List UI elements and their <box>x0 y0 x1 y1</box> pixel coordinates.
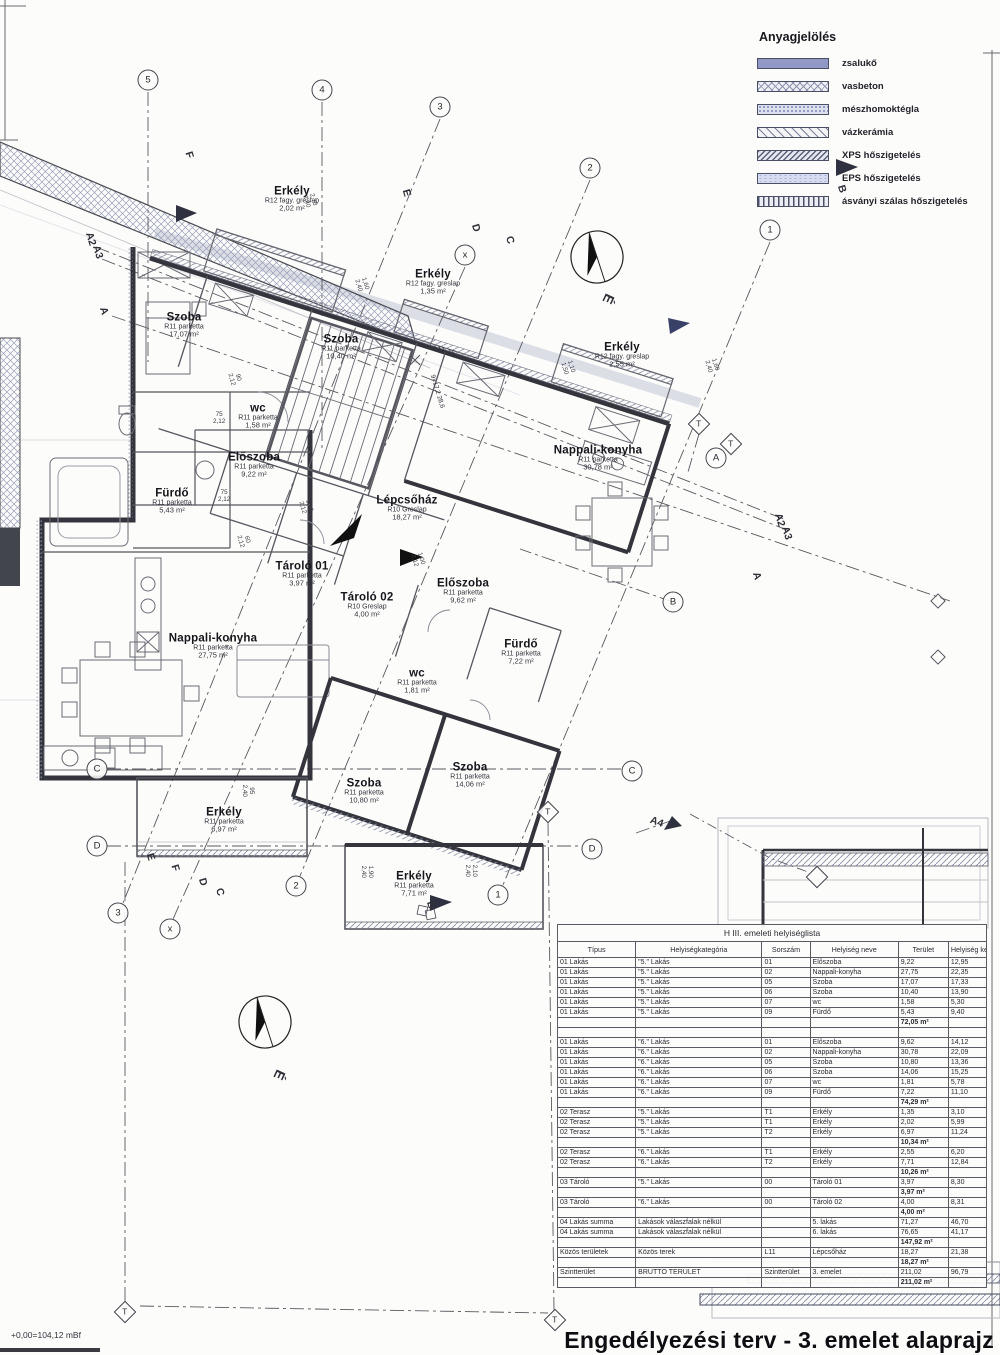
table-row: 3,97 m² <box>558 1188 987 1198</box>
table-row: 04 Lakás summaLakások válaszfalak nélkül… <box>558 1218 987 1228</box>
legend-title: Anyagjelölés <box>759 30 993 44</box>
col-kategoria: Helyiségkategória <box>636 942 762 958</box>
room-label-furdo-543: Fürdő R11 parketta 5,43 m² <box>152 487 192 514</box>
axis-marker-c: C <box>87 759 108 780</box>
wall-section-detail-1 <box>690 814 988 928</box>
axis-marker-1: 1 <box>488 885 509 906</box>
axis-marker-2: 2 <box>286 876 307 897</box>
dimension: 752,12 <box>218 490 230 504</box>
room-label-lepcsohaz: Lépcsőház R10 Greslap 18,27 m² <box>376 494 437 521</box>
legend-item: ásványi szálas hőszigetelés <box>757 195 993 207</box>
dimension: 2,102,40 <box>463 865 477 877</box>
dimension: 1,902,40 <box>359 866 373 878</box>
axis-marker-4: 4 <box>312 80 333 101</box>
axis-marker-2: 2 <box>580 158 601 179</box>
swatch-meszhomoktegla <box>757 104 829 115</box>
table-row: 01 Lakás"6." Lakás05Szoba10,8013,36 <box>558 1058 987 1068</box>
room-label-eloszoba-962: Előszoba R11 parketta 9,62 m² <box>437 577 489 604</box>
room-label-eloszoba-922: Előszoba R11 parketta 9,22 m² <box>228 451 280 478</box>
room-label-erkely-697: Erkély R11 parketta 6,97 m² <box>204 806 244 833</box>
table-row: 02 Terasz"6." LakásT2Erkély7,7112,84 <box>558 1158 987 1168</box>
legend-item: EPS hőszigetelés <box>757 172 993 184</box>
balcony-771 <box>345 845 543 929</box>
table-title: H III. emeleti helyiséglista <box>558 925 987 942</box>
table-row: 18,27 m² <box>558 1258 987 1268</box>
table-row: 01 Lakás"6." Lakás07wc1,815,78 <box>558 1078 987 1088</box>
room-label-erkely-135: Erkély R12 fagy. greslap 1,35 m² <box>406 268 460 295</box>
table-row: 72,05 m² <box>558 1018 987 1028</box>
legend-item: XPS hőszigetelés <box>757 149 993 161</box>
axis-marker-1: 1 <box>760 220 781 241</box>
table-row: 01 Lakás"5." Lakás06Szoba10,4013,90 <box>558 988 987 998</box>
table-header-row: Típus Helyiségkategória Sorszám Helyiség… <box>558 942 987 958</box>
col-terulet: Terület <box>898 942 948 958</box>
axis-marker-d: D <box>87 836 108 857</box>
table-row: 01 Lakás"5." Lakás07wc1,585,30 <box>558 998 987 1008</box>
dimension: 752,12 <box>213 412 225 426</box>
table-row <box>558 1028 987 1038</box>
col-tipus: Típus <box>558 942 636 958</box>
north-arrow-icon <box>564 224 630 290</box>
swatch-zsaluko <box>757 58 829 69</box>
axis-marker-a: A <box>706 448 727 469</box>
table-row: 74,29 m² <box>558 1098 987 1108</box>
axis-marker-x: x <box>455 245 476 266</box>
room-label-wc-181: wc R11 parketta 1,81 m² <box>397 667 437 694</box>
table-row: 02 Terasz"5." LakásT1Erkély2,025,99 <box>558 1118 987 1128</box>
table-row: SzintterületBRUTTÓ TERÜLETSzintterület3.… <box>558 1268 987 1278</box>
dimension: 952,40 <box>240 785 254 797</box>
room-label-nappali-2775: Nappali-konyha R11 parketta 27,75 m² <box>169 632 257 659</box>
room-label-nappali-3078: Nappali-konyha R11 parketta 30,78 m² <box>554 444 642 471</box>
room-schedule-table: H III. emeleti helyiséglista Típus Helyi… <box>557 924 987 1288</box>
swatch-vazkeramia <box>757 127 829 138</box>
legend-item: vasbeton <box>757 80 993 92</box>
table-row: 01 Lakás"6." Lakás06Szoba14,0615,25 <box>558 1068 987 1078</box>
table-row: 01 Lakás"6." Lakás09Fürdő7,2211,10 <box>558 1088 987 1098</box>
swatch-eps <box>757 173 829 184</box>
room-label-erkely-771: Erkély R11 parketta 7,71 m² <box>394 870 434 897</box>
axis-marker-d: D <box>582 839 603 860</box>
axis-marker-5: 5 <box>138 70 159 91</box>
table-row: 4,00 m² <box>558 1208 987 1218</box>
room-label-szoba-1080: Szoba R11 parketta 10,80 m² <box>344 777 384 804</box>
swatch-asvanyi <box>757 196 829 207</box>
room-label-szoba-1707: Szoba R11 parketta 17,07 m² <box>164 311 204 338</box>
table-row: 01 Lakás"6." Lakás01Előszoba9,6214,12 <box>558 1038 987 1048</box>
room-label-furdo-722: Fürdő R11 parketta 7,22 m² <box>501 638 541 665</box>
table-row: 10,26 m² <box>558 1168 987 1178</box>
axis-marker-b: B <box>663 592 684 613</box>
legend-item: mészhomoktégla <box>757 103 993 115</box>
room-label-tarolo-01: Tároló 01 R11 parketta 3,97 m² <box>276 560 329 587</box>
room-label-erkely-255: Erkély R12 fagy. greslap 2,55 m² <box>595 341 649 368</box>
table-row: 01 Lakás"5." Lakás02Nappali-konyha27,752… <box>558 968 987 978</box>
col-kerulet: Helyiség kerül. <box>948 942 986 958</box>
table-row: 02 Terasz"6." LakásT1Erkély2,556,20 <box>558 1148 987 1158</box>
axis-marker-3: 3 <box>430 97 451 118</box>
table-row: 01 Lakás"6." Lakás02Nappali-konyha30,782… <box>558 1048 987 1058</box>
datum-note: +0,00=104,12 mBf <box>11 1330 81 1340</box>
sheet-title: Engedélyezési terv - 3. emelet alaprajz <box>564 1327 994 1354</box>
table-row: 211,02 m² <box>558 1278 987 1288</box>
room-label-wc-158: wc R11 parketta 1,58 m² <box>238 402 278 429</box>
table-row: 02 Terasz"5." LakásT2Erkély6,9711,24 <box>558 1128 987 1138</box>
table-row: 03 Tároló"5." Lakás00Tároló 013,978,30 <box>558 1178 987 1188</box>
dining-furniture <box>576 482 668 582</box>
table-row: 01 Lakás"5." Lakás09Fürdő5,439,40 <box>558 1008 987 1018</box>
axis-marker-c: C <box>622 761 643 782</box>
col-sorszam: Sorszám <box>762 942 810 958</box>
table-row: 01 Lakás"5." Lakás05Szoba17,0717,33 <box>558 978 987 988</box>
table-row: 147,92 m² <box>558 1238 987 1248</box>
drawing-sheet: Anyagjelölés zsalukő vasbeton mészhomokt… <box>0 0 1000 1355</box>
legend-item: zsalukő <box>757 57 993 69</box>
north-arrow-icon <box>232 989 298 1055</box>
swatch-xps <box>757 150 829 161</box>
table-row: 03 Tároló"6." Lakás00Tároló 024,008,31 <box>558 1198 987 1208</box>
room-label-szoba-1040: Szoba R11 parketta 10,40 m² <box>321 333 361 360</box>
table-row: 02 Terasz"5." LakásT1Erkély1,353,10 <box>558 1108 987 1118</box>
axis-marker-3: 3 <box>108 903 129 924</box>
col-nev: Helyiség neve <box>810 942 898 958</box>
table-row: Közös területekKözös terekL11Lépcsőház18… <box>558 1248 987 1258</box>
table-row: 10,34 m² <box>558 1138 987 1148</box>
swatch-vasbeton <box>757 81 829 92</box>
table-row: 01 Lakás"5." Lakás01Előszoba9,2212,95 <box>558 958 987 968</box>
legend-item: vázkerámia <box>757 126 993 138</box>
room-label-tarolo-02: Tároló 02 R10 Greslap 4,00 m² <box>341 591 394 618</box>
axis-marker-x: x <box>160 919 181 940</box>
table-row: 04 Lakás summaLakások válaszfalak nélkül… <box>558 1228 987 1238</box>
room-label-szoba-1406: Szoba R11 parketta 14,06 m² <box>450 761 490 788</box>
material-legend: Anyagjelölés zsalukő vasbeton mészhomokt… <box>757 30 993 218</box>
room-table-body: 01 Lakás"5." Lakás01Előszoba9,2212,9501 … <box>558 958 987 1288</box>
